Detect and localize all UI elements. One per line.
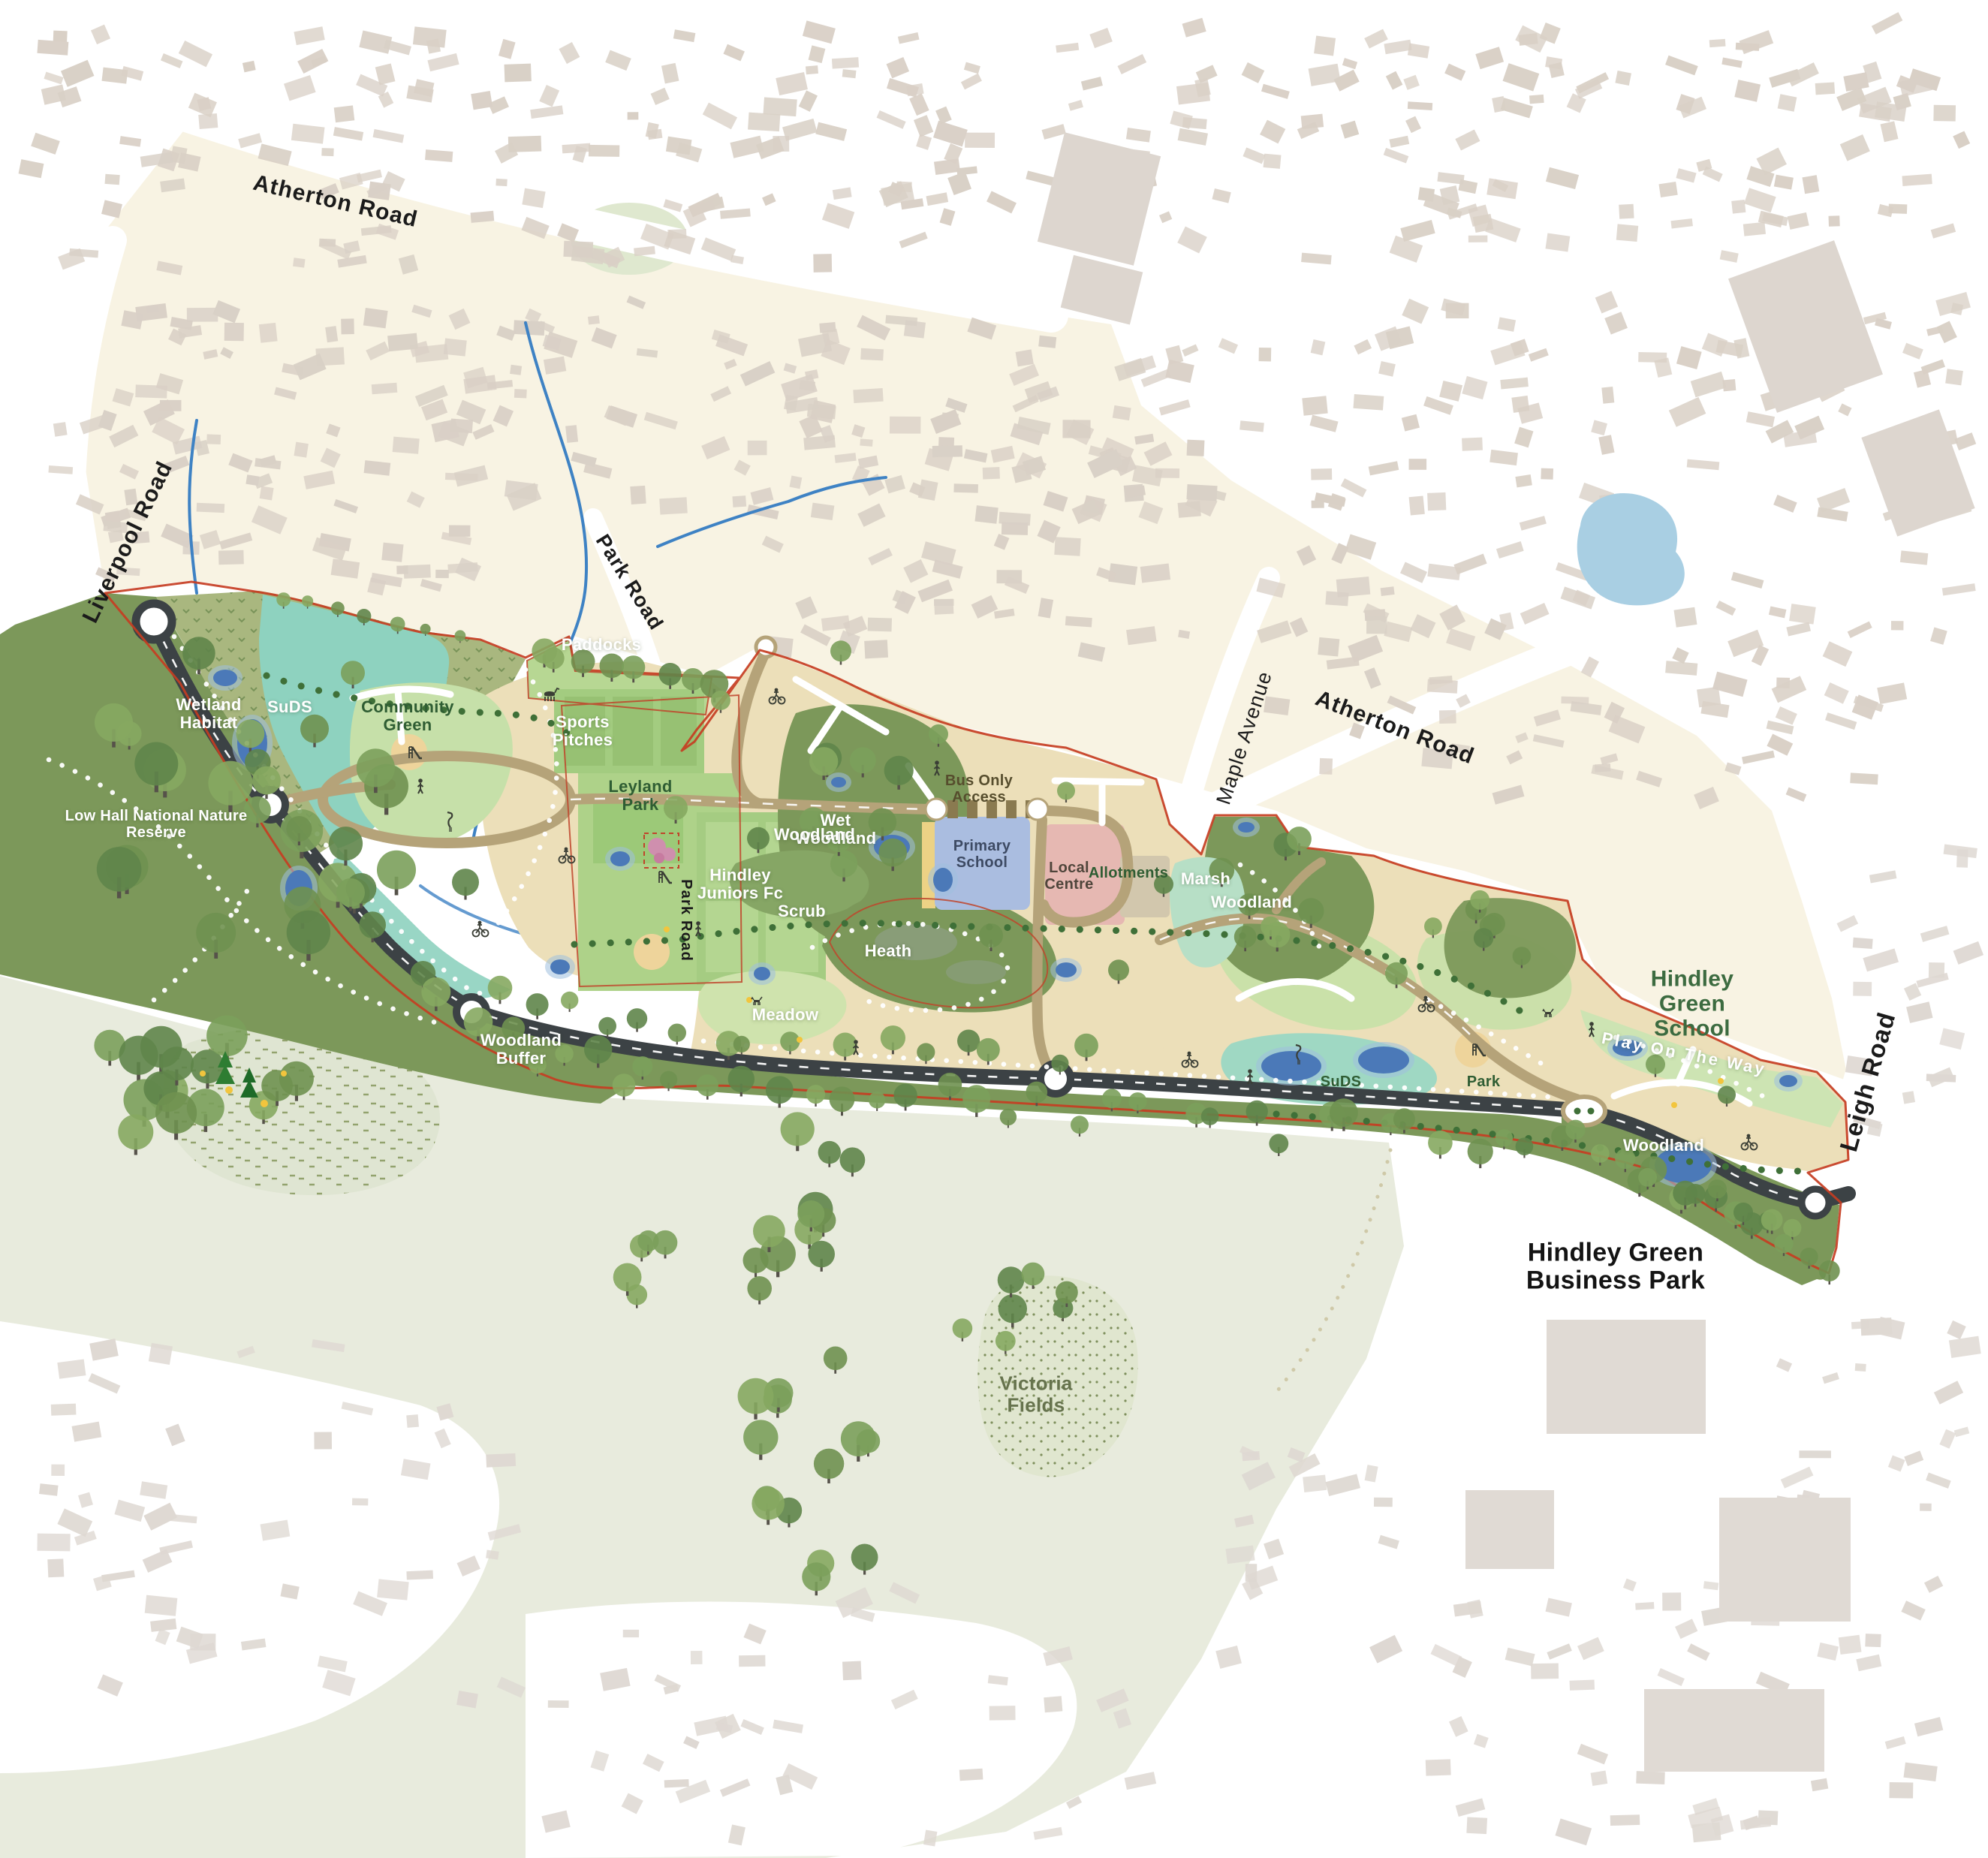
building: [623, 1630, 639, 1637]
building: [116, 567, 140, 576]
tree: [979, 923, 1003, 947]
building: [904, 320, 926, 338]
tree: [561, 992, 578, 1009]
building: [495, 179, 507, 186]
tree: [850, 747, 876, 773]
building: [1865, 1634, 1881, 1647]
building: [938, 437, 954, 447]
building: [1692, 1822, 1721, 1842]
tree: [529, 1056, 547, 1074]
building: [934, 599, 953, 615]
building: [1531, 1664, 1559, 1679]
pond: [610, 851, 630, 866]
map-canvas: [0, 0, 1988, 1858]
building: [932, 445, 962, 457]
tree: [160, 1046, 194, 1080]
building: [449, 525, 471, 537]
building: [1325, 591, 1348, 606]
accent-mark: [746, 997, 752, 1003]
building: [832, 57, 859, 69]
tree: [884, 756, 914, 785]
tree: [420, 624, 431, 634]
building: [170, 146, 188, 164]
building: [953, 483, 978, 492]
tree: [261, 1070, 293, 1101]
tree: [584, 1035, 612, 1063]
accent-mark: [281, 1071, 287, 1077]
building: [1311, 468, 1332, 480]
tree: [869, 1092, 885, 1108]
tree: [1071, 1116, 1089, 1134]
building: [890, 417, 920, 434]
building: [811, 503, 835, 520]
building: [425, 149, 453, 162]
tree: [1428, 1131, 1453, 1155]
juniors-pitch: [706, 901, 758, 972]
tree: [998, 1266, 1025, 1293]
building: [206, 434, 221, 444]
tree: [1102, 1089, 1122, 1108]
tree: [613, 1074, 636, 1097]
building: [864, 640, 888, 658]
tree: [830, 640, 851, 661]
tree: [1074, 1034, 1098, 1058]
tree: [962, 1085, 990, 1113]
tree: [600, 654, 625, 679]
tree: [632, 1056, 652, 1077]
tree: [752, 1487, 785, 1520]
building: [224, 323, 244, 342]
building: [124, 489, 137, 505]
building: [1426, 1759, 1451, 1775]
building: [1789, 604, 1816, 625]
building: [822, 329, 840, 346]
tree: [1393, 1108, 1415, 1130]
tree: [780, 1031, 800, 1051]
tree: [747, 827, 770, 850]
building: [486, 1550, 499, 1560]
building: [363, 308, 388, 328]
building: [691, 1651, 703, 1664]
tree: [999, 1294, 1027, 1323]
building: [1466, 1817, 1487, 1834]
building: [1839, 1635, 1862, 1655]
building: [1570, 1679, 1595, 1690]
tree: [118, 1114, 153, 1149]
building: [565, 425, 578, 443]
building: [435, 570, 449, 578]
tree: [117, 721, 142, 746]
building: [628, 112, 639, 119]
tree: [1234, 926, 1257, 948]
building: [1902, 174, 1932, 186]
school-grounds-strip: [922, 822, 935, 908]
building: [588, 315, 600, 324]
building: [1619, 204, 1634, 219]
building: [1318, 637, 1339, 657]
tree: [1238, 893, 1261, 916]
building: [1920, 1504, 1932, 1511]
building: [1054, 537, 1080, 556]
building: [1446, 303, 1469, 318]
accent-mark: [200, 1071, 206, 1077]
tree: [1565, 1120, 1585, 1140]
tree: [977, 1038, 1000, 1061]
tree: [1298, 898, 1324, 923]
building: [896, 182, 912, 193]
tree: [452, 869, 479, 896]
tree: [421, 977, 450, 1007]
tree: [851, 1544, 878, 1571]
building: [965, 133, 995, 148]
tree: [1468, 1139, 1493, 1164]
building: [1802, 175, 1819, 194]
building: [377, 1579, 409, 1600]
ne-woodland: [1444, 898, 1577, 998]
tree: [802, 1562, 830, 1591]
tree: [1022, 1263, 1045, 1286]
heath-scrape: [946, 960, 1006, 984]
tree: [1057, 781, 1075, 800]
building: [1374, 1498, 1393, 1507]
building: [510, 365, 522, 375]
tree: [797, 1200, 824, 1227]
accent-mark: [225, 1086, 233, 1094]
tree: [840, 1147, 866, 1173]
tree: [808, 1241, 835, 1268]
tree: [711, 691, 730, 710]
building: [53, 31, 68, 42]
building: [630, 486, 646, 504]
building: [260, 486, 274, 501]
roundabout: [1802, 1189, 1829, 1216]
building: [1709, 39, 1726, 47]
sports-pitch: [661, 697, 697, 766]
tree: [526, 993, 549, 1016]
tree: [957, 1030, 980, 1052]
building: [1038, 336, 1056, 348]
business-park-building: [1465, 1490, 1554, 1569]
building: [983, 467, 1000, 479]
tree: [830, 1086, 855, 1112]
business-park-building: [1719, 1498, 1851, 1622]
building: [1929, 962, 1944, 978]
building: [334, 105, 355, 122]
tree: [830, 851, 857, 878]
tree: [302, 595, 313, 607]
tree: [659, 663, 682, 685]
building: [101, 68, 128, 84]
building: [1303, 1474, 1327, 1492]
building: [1016, 349, 1034, 366]
building: [1541, 468, 1553, 480]
building: [1178, 501, 1201, 518]
building: [1545, 233, 1570, 251]
tree: [1246, 1101, 1268, 1122]
building: [505, 64, 532, 83]
building: [1259, 348, 1272, 361]
pond: [550, 959, 570, 974]
tree: [97, 847, 142, 892]
building: [789, 475, 802, 489]
building: [1736, 43, 1760, 51]
tree: [738, 1378, 774, 1414]
building: [842, 1661, 862, 1681]
building: [1468, 236, 1488, 242]
tree: [286, 816, 312, 842]
building: [1427, 492, 1446, 510]
building: [989, 1706, 1016, 1721]
building: [1462, 438, 1483, 451]
tree: [555, 1045, 573, 1063]
business-park-building: [1644, 1689, 1824, 1772]
tree: [331, 601, 345, 615]
tree: [1051, 1055, 1068, 1072]
building: [37, 40, 68, 56]
pond: [1261, 1051, 1321, 1081]
tree: [252, 766, 281, 795]
building: [548, 1700, 569, 1708]
accent-mark: [1718, 1078, 1724, 1084]
tree: [869, 809, 896, 836]
tree: [244, 797, 271, 824]
masterplan-map: Atherton Road Liverpool Road Park Road M…: [0, 0, 1988, 1858]
tree: [182, 637, 215, 670]
building: [47, 1558, 64, 1577]
tree: [571, 649, 595, 673]
building: [53, 422, 68, 437]
primary-school-block: [935, 817, 1030, 910]
tree: [1470, 890, 1489, 910]
tree: [1000, 1109, 1017, 1125]
building: [1891, 621, 1904, 630]
gateway-oval: [1563, 1097, 1605, 1125]
tree: [336, 878, 365, 907]
pond: [754, 967, 770, 980]
tree: [276, 592, 291, 607]
tree: [196, 913, 236, 953]
tree: [747, 1276, 772, 1301]
building: [51, 1465, 65, 1476]
tree: [1646, 1055, 1665, 1074]
tree: [1128, 1092, 1146, 1110]
building: [197, 503, 225, 513]
building: [1853, 938, 1873, 949]
building: [57, 1359, 86, 1378]
building: [1591, 1771, 1608, 1786]
building: [868, 618, 892, 632]
tree: [1638, 1168, 1657, 1187]
building: [1264, 696, 1290, 715]
building: [381, 543, 403, 562]
building: [445, 473, 478, 481]
building: [1867, 1122, 1883, 1137]
building: [1610, 1814, 1640, 1826]
tree: [300, 715, 329, 743]
building: [748, 441, 767, 455]
building: [450, 418, 473, 433]
building: [1673, 607, 1697, 628]
building: [1002, 522, 1028, 535]
tree: [1774, 1234, 1793, 1253]
building: [763, 97, 797, 116]
building: [1353, 394, 1384, 411]
tree: [660, 1071, 677, 1089]
tree: [1819, 1260, 1840, 1281]
building: [1731, 200, 1746, 214]
tree: [134, 742, 178, 786]
tree: [929, 724, 948, 744]
building: [160, 400, 182, 411]
tree: [627, 1008, 647, 1028]
tree: [766, 1076, 794, 1104]
building: [149, 1343, 173, 1365]
building: [1799, 1450, 1830, 1458]
accent-mark: [664, 926, 670, 932]
building: [659, 497, 688, 514]
building: [1636, 1771, 1665, 1784]
tree: [1474, 928, 1493, 947]
bus-gate-node: [1027, 799, 1048, 820]
pond: [1056, 962, 1077, 977]
building: [1187, 440, 1205, 456]
building: [1044, 1696, 1062, 1712]
building: [1408, 101, 1432, 110]
tree: [1287, 827, 1312, 851]
tree: [781, 1112, 815, 1146]
tree: [733, 1036, 750, 1052]
building: [813, 254, 832, 273]
tree: [893, 1083, 917, 1107]
building: [1561, 697, 1589, 704]
tree: [728, 1066, 755, 1092]
building: [245, 474, 259, 486]
tree: [359, 911, 386, 938]
tree: [390, 617, 405, 632]
tree: [1424, 917, 1442, 935]
tree: [1761, 1209, 1783, 1231]
tree: [1496, 1129, 1513, 1146]
tree: [1056, 1281, 1078, 1304]
tree: [543, 647, 565, 669]
tree: [455, 630, 466, 641]
building: [218, 550, 244, 565]
tree: [377, 851, 416, 890]
building: [1853, 982, 1872, 996]
building: [341, 318, 354, 334]
building: [923, 1830, 937, 1847]
tree: [357, 748, 395, 787]
building: [1264, 154, 1282, 169]
building: [522, 188, 545, 208]
pond: [1238, 822, 1255, 833]
tree: [806, 1085, 825, 1104]
sports-pitch: [565, 697, 605, 766]
building: [1439, 710, 1456, 724]
business-park-building: [1547, 1320, 1706, 1434]
building: [563, 241, 593, 258]
building: [1933, 105, 1956, 122]
building: [1850, 772, 1878, 784]
tree: [881, 1025, 905, 1050]
building: [589, 145, 619, 157]
building: [294, 442, 308, 458]
tree: [119, 1036, 158, 1075]
tree: [743, 1420, 778, 1454]
tree: [814, 1449, 844, 1479]
building: [39, 1483, 59, 1496]
building: [1601, 387, 1614, 404]
building: [1319, 758, 1333, 775]
tree: [155, 1092, 197, 1134]
tree: [1201, 1107, 1219, 1125]
building: [842, 69, 857, 78]
building: [406, 1570, 433, 1580]
tree: [598, 1017, 616, 1035]
building: [404, 565, 431, 579]
building: [739, 1655, 765, 1667]
building: [860, 438, 872, 447]
tree: [1269, 1134, 1288, 1153]
tree: [341, 661, 365, 685]
tree: [1385, 962, 1408, 985]
tree: [697, 1074, 718, 1096]
tree: [938, 1073, 962, 1097]
tree: [1513, 947, 1532, 965]
building: [131, 532, 149, 544]
tree: [236, 719, 265, 748]
tree: [622, 655, 645, 679]
building: [1658, 182, 1677, 197]
building: [1062, 420, 1090, 438]
tree: [637, 1230, 658, 1251]
tree: [878, 839, 907, 867]
building: [1829, 215, 1840, 226]
building: [732, 495, 746, 507]
building: [1409, 495, 1425, 515]
building: [1155, 468, 1179, 478]
tree: [1026, 1082, 1048, 1104]
tree: [1154, 875, 1173, 894]
building: [325, 326, 338, 342]
building: [259, 323, 278, 343]
building: [974, 505, 998, 524]
tree: [809, 747, 838, 775]
pond: [1779, 1075, 1797, 1087]
building: [471, 211, 495, 223]
building: [1662, 1592, 1681, 1610]
building: [664, 1779, 689, 1787]
building: [1421, 748, 1453, 769]
tree: [464, 1007, 493, 1037]
building: [1616, 224, 1638, 242]
tree: [917, 1043, 935, 1061]
building: [37, 1534, 70, 1552]
tree: [953, 1318, 973, 1339]
building: [1186, 484, 1217, 501]
building: [321, 148, 333, 156]
tree: [753, 1215, 785, 1248]
building: [1926, 1074, 1956, 1082]
building: [51, 1404, 77, 1416]
tree: [841, 1421, 876, 1456]
building: [293, 257, 306, 267]
tree: [1209, 858, 1235, 884]
building: [406, 1414, 419, 1428]
tree: [1591, 1144, 1610, 1163]
tree: [1516, 1137, 1534, 1155]
building: [387, 333, 418, 352]
